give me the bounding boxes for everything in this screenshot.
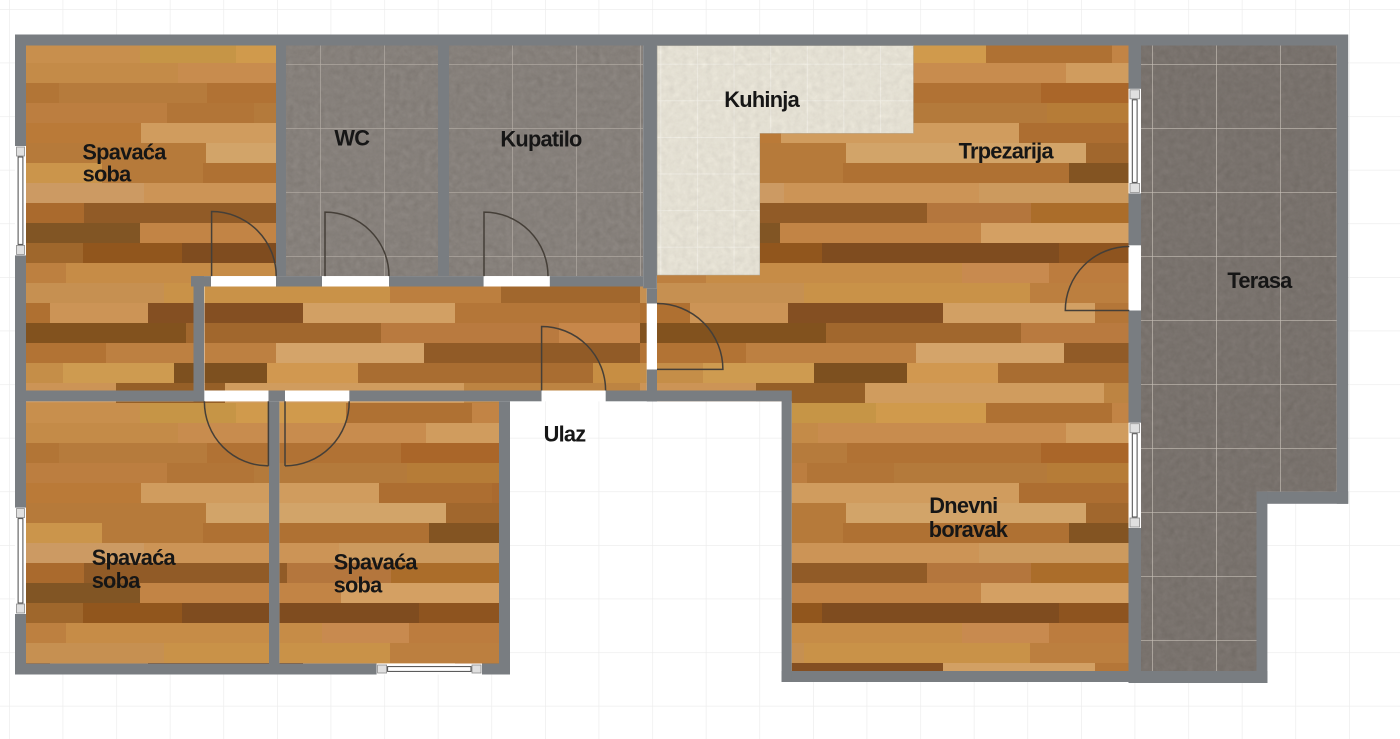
svg-text:Ulaz: Ulaz [544, 422, 587, 447]
svg-text:Terasa: Terasa [1227, 268, 1293, 293]
svg-text:WC: WC [334, 125, 370, 150]
svg-text:soba: soba [334, 573, 384, 598]
svg-text:Spavaća: Spavaća [92, 545, 177, 570]
svg-text:soba: soba [92, 568, 142, 593]
svg-text:Kuhinja: Kuhinja [724, 87, 800, 112]
svg-text:soba: soba [83, 162, 133, 187]
svg-text:Dnevni: Dnevni [929, 493, 997, 518]
svg-text:Trpezarija: Trpezarija [959, 138, 1055, 163]
svg-text:boravak: boravak [929, 517, 1009, 542]
svg-text:Spavaća: Spavaća [334, 549, 419, 574]
svg-text:Kupatilo: Kupatilo [500, 127, 582, 152]
